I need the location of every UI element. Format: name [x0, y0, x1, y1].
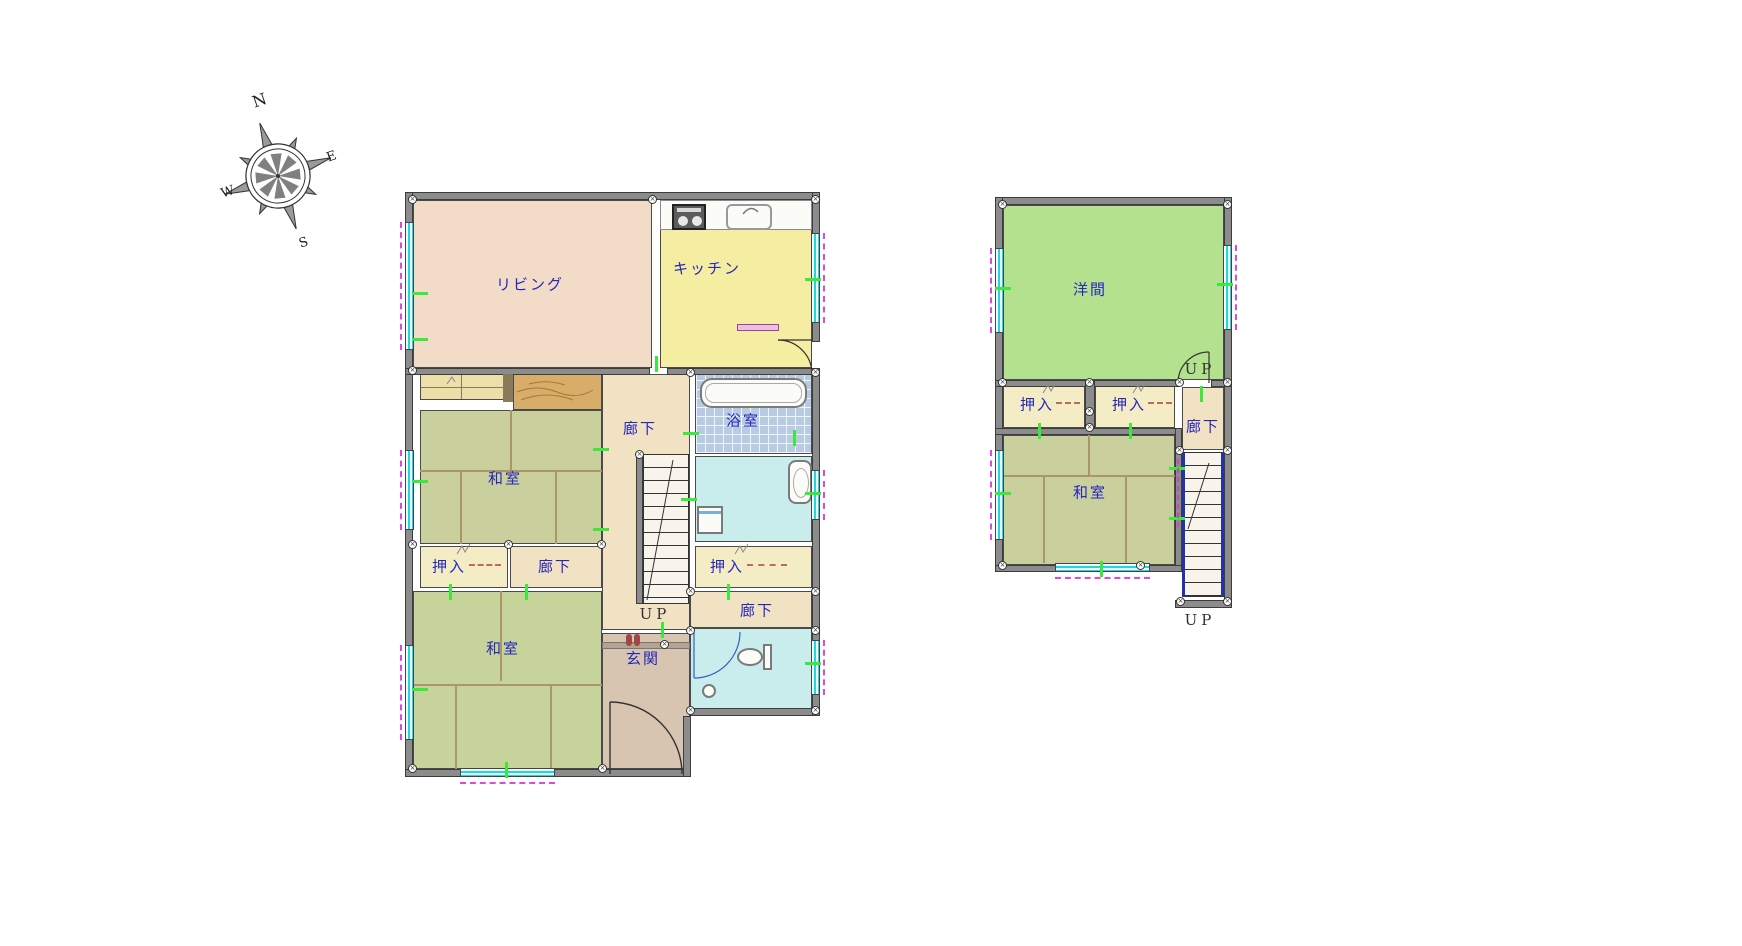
wall-joint-marker: ×: [408, 540, 417, 549]
washitsu-2f-label: 和室: [1073, 482, 1107, 503]
oshiire-dashes: [469, 564, 501, 566]
window: [405, 645, 414, 740]
window-outer-dash: [400, 222, 402, 350]
exterior-wall: [690, 708, 820, 716]
toilet-bowl: [737, 648, 763, 666]
wall-joint-marker: ×: [811, 626, 820, 635]
wall-joint-marker: ×: [598, 764, 607, 773]
opening-tick: [412, 292, 428, 295]
oshiire-2f-left-label: 押入: [1020, 394, 1054, 415]
tatami-seam: [1003, 475, 1175, 477]
washitsu-bottom-label: 和室: [486, 638, 520, 659]
tatami-seam: [1125, 477, 1127, 563]
wall-joint-marker: ×: [1223, 446, 1232, 455]
exterior-wall: [405, 192, 820, 200]
opening-tick: [525, 584, 528, 600]
exterior-wall: [995, 197, 1232, 205]
tatami-seam: [500, 591, 502, 681]
interior-wall: [405, 368, 650, 375]
opening-tick: [727, 584, 730, 600]
washitsu-middle-label: 和室: [488, 468, 522, 489]
tatami-seam: [555, 472, 557, 544]
washing-machine: [697, 506, 723, 534]
tatami-seam: [1088, 435, 1090, 475]
opening-tick: [805, 492, 821, 495]
wall-joint-marker: ×: [998, 378, 1007, 387]
wall-joint-marker: ×: [811, 706, 820, 715]
opening-tick: [412, 338, 428, 341]
opening-tick: [805, 662, 821, 665]
opening-tick: [793, 430, 796, 446]
wall-joint-marker: ×: [1085, 407, 1094, 416]
opening-tick: [505, 762, 508, 778]
staircase-2f: [1182, 452, 1224, 597]
oshiire-right-label: 押入: [710, 556, 744, 577]
opening-tick: [1129, 423, 1132, 439]
wall-joint-marker: ×: [1223, 378, 1232, 387]
compass-n-label: N: [250, 89, 269, 112]
window-outer-dash: [823, 233, 825, 323]
wall-joint-marker: ×: [1175, 446, 1184, 455]
opening-tick: [1169, 467, 1185, 470]
hallway-small-label: 廊下: [538, 556, 572, 577]
wall-joint-marker: ×: [1175, 378, 1184, 387]
window-outer-dash: [1235, 245, 1237, 330]
wall-joint-marker: ×: [811, 587, 820, 596]
hallway-toilet-label: 廊下: [740, 600, 774, 621]
window-outer-dash: [400, 450, 402, 530]
vanity-unit: [788, 460, 812, 504]
window-outer-dash: [990, 450, 992, 540]
window-outer-dash: [400, 645, 402, 740]
wall-joint-marker: ×: [408, 195, 417, 204]
opening-tick: [593, 448, 609, 451]
opening-tick: [449, 584, 452, 600]
wall-joint-marker: ×: [597, 540, 606, 549]
wall-joint-marker: ×: [648, 195, 657, 204]
wall-joint-marker: ×: [660, 640, 669, 649]
window-outer-dash: [990, 248, 992, 333]
hallway-2f-label: 廊下: [1186, 416, 1220, 437]
wall-joint-marker: ×: [1176, 597, 1185, 606]
wall-joint-marker: ×: [635, 450, 644, 459]
compass-w-label: W: [219, 183, 237, 202]
bathtub: [700, 378, 807, 408]
bathroom-label: 浴室: [726, 410, 760, 431]
western-room-label: 洋間: [1073, 279, 1107, 300]
wall-joint-marker: ×: [686, 587, 695, 596]
floor-plan-canvas: N E W S: [0, 0, 1742, 946]
wall-joint-marker: ×: [998, 200, 1007, 209]
wood-alcove: [513, 374, 602, 410]
opening-tick: [1200, 386, 1203, 402]
oshiire-dashes: [1056, 402, 1080, 404]
kitchen-counter-bar: [737, 324, 779, 331]
staircase-1f: [643, 454, 689, 604]
opening-tick: [412, 480, 428, 483]
stair-newel: [636, 454, 643, 604]
wall-joint-marker: ×: [1223, 200, 1232, 209]
window: [1223, 245, 1232, 330]
tatami-seam: [413, 684, 602, 686]
opening-tick: [412, 688, 428, 691]
cabinet-divider: [503, 374, 513, 402]
toilet-tank: [763, 644, 772, 670]
opening-tick: [655, 356, 658, 372]
opening-tick: [683, 432, 699, 435]
wall-joint-marker: ×: [504, 540, 513, 549]
exterior-wall: [683, 716, 691, 777]
wall-joint-marker: ×: [408, 764, 417, 773]
washitsu-bottom: [413, 591, 602, 769]
stairs-up-top-label: UP: [1185, 360, 1216, 378]
shoe-icon: [626, 634, 632, 646]
stove-icon: [672, 204, 706, 230]
compass-s-label: S: [297, 234, 310, 251]
window-outer-dash: [1055, 577, 1150, 579]
wall-joint-marker: ×: [686, 368, 695, 377]
western-room: [1003, 205, 1224, 380]
wall-joint-marker: ×: [1085, 378, 1094, 387]
opening-tick: [1038, 423, 1041, 439]
wall-joint-marker: ×: [686, 706, 695, 715]
compass-e-label: E: [325, 148, 339, 165]
window: [811, 470, 820, 520]
wall-joint-marker: ×: [998, 561, 1007, 570]
kitchen-label: キッチン: [673, 258, 741, 279]
window: [405, 222, 414, 350]
opening-tick: [995, 287, 1011, 290]
oshiire-dashes: [1148, 402, 1172, 404]
genkan-label: 玄関: [626, 648, 660, 669]
opening-tick: [1100, 561, 1103, 577]
first-floor: リビング キッチン 廊下 浴室 和室 押入 廊下 押入 和室 玄関 廊下 UP: [405, 192, 828, 784]
opening-tick: [681, 498, 697, 501]
opening-tick: [1169, 517, 1185, 520]
toilet-room: [690, 628, 812, 713]
cabinet-strip: [420, 374, 508, 400]
wall-joint-marker: ×: [811, 195, 820, 204]
tatami-seam: [455, 686, 457, 769]
opening-tick: [593, 528, 609, 531]
opening-tick: [805, 278, 821, 281]
window: [995, 450, 1004, 540]
window-outer-dash: [823, 640, 825, 695]
window-outer-dash: [460, 782, 555, 784]
wall-joint-marker: ×: [1223, 597, 1232, 606]
stairs-up-bottom-label: UP: [1185, 611, 1216, 629]
window: [811, 640, 820, 695]
compass-rose: N E W S: [215, 88, 350, 263]
wall-joint-marker: ×: [1085, 423, 1094, 432]
tatami-seam: [1043, 477, 1045, 563]
wall-joint-marker: ×: [811, 368, 820, 377]
opening-tick: [1217, 283, 1233, 286]
interior-wall: [1085, 380, 1095, 428]
oshiire-left-label: 押入: [432, 556, 466, 577]
hallway-main-label: 廊下: [623, 418, 657, 439]
kitchen-sink: [726, 204, 772, 230]
wall-joint-marker: ×: [686, 626, 695, 635]
opening-tick: [995, 492, 1011, 495]
wall-joint-marker: ×: [408, 366, 417, 375]
wall-joint-marker: ×: [1136, 561, 1145, 570]
living-label: リビング: [496, 274, 564, 295]
tatami-seam: [510, 410, 512, 470]
oshiire-2f-right-label: 押入: [1112, 394, 1146, 415]
stairs-up-label-1f: UP: [640, 605, 671, 623]
toilet-hand-basin: [702, 684, 716, 698]
oshiire-dashes: [747, 564, 787, 566]
shoe-icon: [634, 634, 640, 646]
tatami-seam: [460, 472, 462, 544]
tatami-seam: [550, 686, 552, 769]
window: [405, 450, 414, 530]
second-floor: 洋間 押入 押入 廊下 和室 UP UP × × × × × × × × × ×…: [995, 197, 1240, 642]
opening-tick: [661, 622, 664, 638]
window-outer-dash: [823, 470, 825, 520]
window: [995, 248, 1004, 333]
